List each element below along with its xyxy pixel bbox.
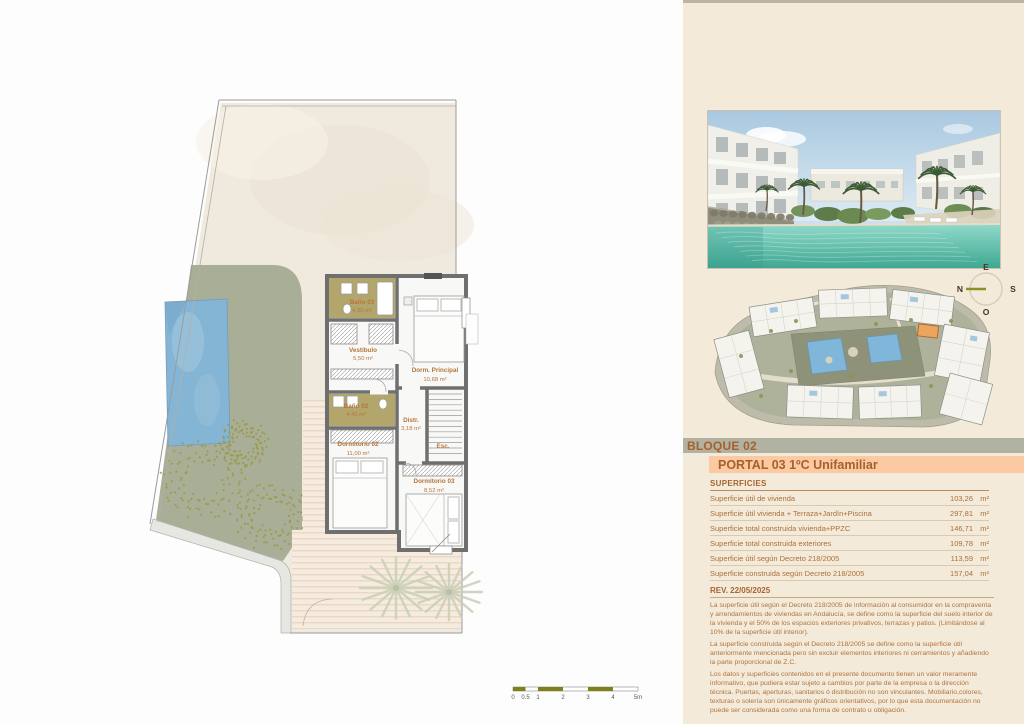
room-area-bano-02: 4,40 m² [346, 412, 366, 418]
superficies-row: Superficie total construida vivienda+PPZ… [710, 521, 989, 536]
superficies-row: Superficie útil de vivienda 103,26 m² [710, 491, 989, 506]
terrace-stripes [303, 400, 327, 532]
brochure-page: Baño 03 4,30 m² Vestíbulo 5,50 m² Dorm. … [0, 0, 1024, 724]
room-label-dormitorio-02: Dormitorio 02 [338, 441, 379, 448]
community-pool [867, 334, 902, 363]
superficies-value: 103,26 [939, 494, 973, 503]
info-panel: E N S O BLOQUE 02 PORTAL 03 1ºC Unifamil… [683, 0, 1024, 724]
superficies-value: 113,59 [939, 554, 973, 563]
panel-top-strip [683, 0, 1024, 3]
scale-bar: 0 0.5 1 2 3 4 5m [511, 687, 642, 701]
superficies-label: Superficie útil vivienda + Terraza+Jardí… [710, 509, 939, 518]
scale-tick: 2 [561, 695, 565, 701]
scale-tick: 4 [611, 695, 615, 701]
portal-title: PORTAL 03 1ºC Unifamiliar [709, 458, 878, 472]
highlighted-unit [917, 324, 938, 338]
bed-dormitorio-03 [406, 494, 462, 546]
room-label-dormitorio-03: Dormitorio 03 [414, 478, 455, 485]
superficies-label: Superficie útil según Decreto 218/2005 [710, 554, 939, 563]
revision-block: REV. 22/05/2025 La superficie útil según… [710, 586, 994, 715]
superficies-unit: m² [973, 494, 989, 503]
scale-tick: 5m [634, 695, 642, 701]
bed-dormitorio-02 [333, 458, 387, 528]
superficies-table: SUPERFICIES Superficie útil de vivienda … [710, 479, 989, 581]
superficies-unit: m² [973, 524, 989, 533]
disclaimer-paragraph: La superficie construida según el Decret… [710, 640, 994, 667]
superficies-value: 109,78 [939, 539, 973, 548]
property-photo-art [708, 111, 1000, 268]
superficies-unit: m² [973, 539, 989, 548]
superficies-unit: m² [973, 554, 989, 563]
room-area-bano-03: 4,30 m² [352, 308, 372, 314]
superficies-label: Superficie total construida exteriores [710, 539, 939, 548]
disclaimer-paragraph: La superficie útil según el Decreto 218/… [710, 601, 994, 637]
bloque-title: BLOQUE 02 [683, 439, 757, 453]
superficies-unit: m² [973, 509, 989, 518]
room-label-bano-03: Baño 03 [350, 299, 375, 306]
compass-east: E [983, 262, 989, 272]
room-label-esc: Esc. [437, 443, 450, 450]
room-area-dorm-principal: 10,68 m² [423, 377, 446, 383]
scale-tick: 0.5 [521, 695, 530, 701]
superficies-label: Superficie construida según Decreto 218/… [710, 569, 939, 578]
room-area-dormitorio-02: 11,00 m² [347, 451, 370, 457]
property-photo [707, 110, 1001, 269]
room-label-bano-02: Baño 02 [344, 403, 369, 410]
disclaimer-paragraph: Los datos y superficies contenidos en el… [710, 670, 994, 715]
room-area-distr: 3,18 m² [401, 426, 421, 432]
scale-tick: 3 [586, 695, 590, 701]
superficies-unit: m² [973, 569, 989, 578]
scale-tick: 0 [511, 695, 515, 701]
bloque-header: BLOQUE 02 [683, 438, 1024, 453]
superficies-row: Superficie construida según Decreto 218/… [710, 566, 989, 581]
room-area-vestibulo: 5,50 m² [353, 356, 373, 362]
compass-north: N [957, 284, 963, 294]
room-label-distr: Distr. [403, 417, 419, 424]
compass: E N S O [955, 260, 1017, 318]
central-courtyard [791, 326, 925, 386]
community-pool [807, 338, 847, 374]
superficies-row: Superficie útil vivienda + Terraza+Jardí… [710, 506, 989, 521]
room-area-dormitorio-03: 8,52 m² [424, 488, 444, 494]
superficies-value: 157,04 [939, 569, 973, 578]
revision-date: REV. 22/05/2025 [710, 586, 994, 598]
superficies-title: SUPERFICIES [710, 479, 989, 491]
superficies-row: Superficie total construida exteriores 1… [710, 536, 989, 551]
room-label-dorm-principal: Dorm. Principal [412, 367, 459, 374]
compass-south: S [1010, 284, 1016, 294]
superficies-value: 297,81 [939, 509, 973, 518]
superficies-label: Superficie útil de vivienda [710, 494, 939, 503]
portal-header: PORTAL 03 1ºC Unifamiliar [709, 456, 1024, 473]
floor-plan: Baño 03 4,30 m² Vestíbulo 5,50 m² Dorm. … [0, 0, 683, 724]
scale-tick: 1 [536, 695, 540, 701]
superficies-row: Superficie útil según Decreto 218/2005 1… [710, 551, 989, 566]
superficies-value: 146,71 [939, 524, 973, 533]
superficies-label: Superficie total construida vivienda+PPZ… [710, 524, 939, 533]
room-label-vestibulo: Vestíbulo [349, 347, 377, 354]
terrain-texture [322, 189, 474, 261]
compass-west: O [983, 307, 990, 317]
